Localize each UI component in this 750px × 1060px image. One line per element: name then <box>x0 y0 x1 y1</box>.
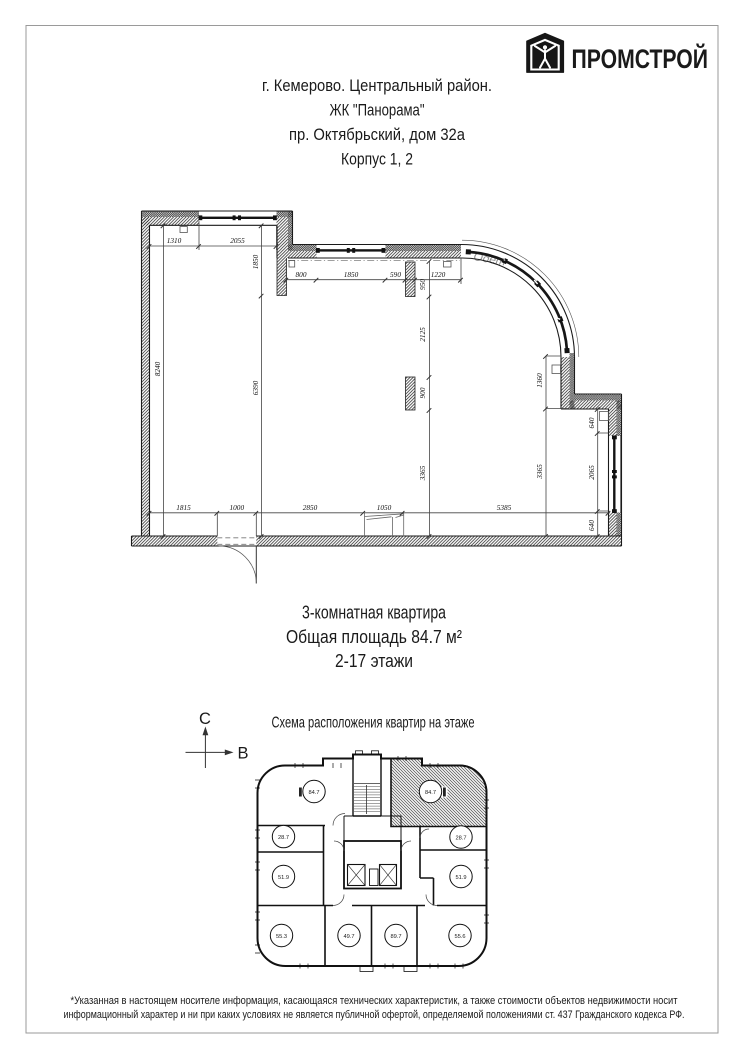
svg-text:1815: 1815 <box>176 503 191 512</box>
svg-text:1850: 1850 <box>344 270 359 279</box>
svg-text:ПРОМСТРОЙ: ПРОМСТРОЙ <box>572 44 709 74</box>
svg-text:2055: 2055 <box>230 236 245 245</box>
svg-text:2065: 2065 <box>587 465 596 480</box>
svg-text:В: В <box>238 745 249 763</box>
svg-text:950: 950 <box>418 279 427 290</box>
svg-text:8240: 8240 <box>153 361 162 376</box>
svg-text:2-17 этажи: 2-17 этажи <box>335 650 413 671</box>
svg-text:1000: 1000 <box>230 503 245 512</box>
svg-text:ЖК "Панорама": ЖК "Панорама" <box>330 102 425 120</box>
svg-text:1850: 1850 <box>251 254 260 269</box>
svg-text:3365: 3365 <box>418 465 427 481</box>
svg-text:640: 640 <box>587 520 596 531</box>
svg-text:*Указанная в настоящем носител: *Указанная в настоящем носителе информац… <box>71 995 678 1007</box>
svg-text:Общая площадь 84.7 м²: Общая площадь 84.7 м² <box>286 626 462 647</box>
svg-text:3365: 3365 <box>535 464 544 480</box>
svg-text:пр. Октябрьский, дом 32а: пр. Октябрьский, дом 32а <box>289 126 466 144</box>
svg-text:6390: 6390 <box>251 380 260 395</box>
svg-text:информационный характер и ни п: информационный характер и ни при каких у… <box>64 1009 685 1021</box>
svg-text:55.3: 55.3 <box>276 934 287 940</box>
svg-text:28.7: 28.7 <box>455 836 466 842</box>
svg-text:1310: 1310 <box>167 236 182 245</box>
svg-text:84.7: 84.7 <box>425 790 436 796</box>
svg-text:1220: 1220 <box>431 270 446 279</box>
svg-text:590: 590 <box>390 270 401 279</box>
svg-text:89.7: 89.7 <box>390 934 401 940</box>
svg-text:800: 800 <box>296 270 307 279</box>
svg-text:2125: 2125 <box>418 327 427 342</box>
svg-text:г. Кемерово. Центральный район: г. Кемерово. Центральный район. <box>262 77 492 95</box>
svg-text:1360: 1360 <box>535 373 544 388</box>
svg-text:2850: 2850 <box>303 503 318 512</box>
svg-text:640: 640 <box>587 417 596 428</box>
svg-text:С: С <box>199 710 211 728</box>
svg-text:1050: 1050 <box>377 503 392 512</box>
svg-text:51.9: 51.9 <box>278 875 289 881</box>
svg-text:28.7: 28.7 <box>278 835 289 841</box>
svg-text:49.7: 49.7 <box>343 934 354 940</box>
svg-text:55.6: 55.6 <box>454 934 465 940</box>
svg-text:3-комнатная квартира: 3-комнатная квартира <box>302 602 447 623</box>
svg-text:84.7: 84.7 <box>308 790 319 796</box>
svg-text:51.9: 51.9 <box>455 875 466 881</box>
svg-text:900: 900 <box>418 387 427 398</box>
svg-text:Схема расположения квартир на: Схема расположения квартир на этаже <box>272 715 475 732</box>
svg-text:Корпус 1, 2: Корпус 1, 2 <box>341 151 413 169</box>
svg-text:5385: 5385 <box>497 503 512 512</box>
